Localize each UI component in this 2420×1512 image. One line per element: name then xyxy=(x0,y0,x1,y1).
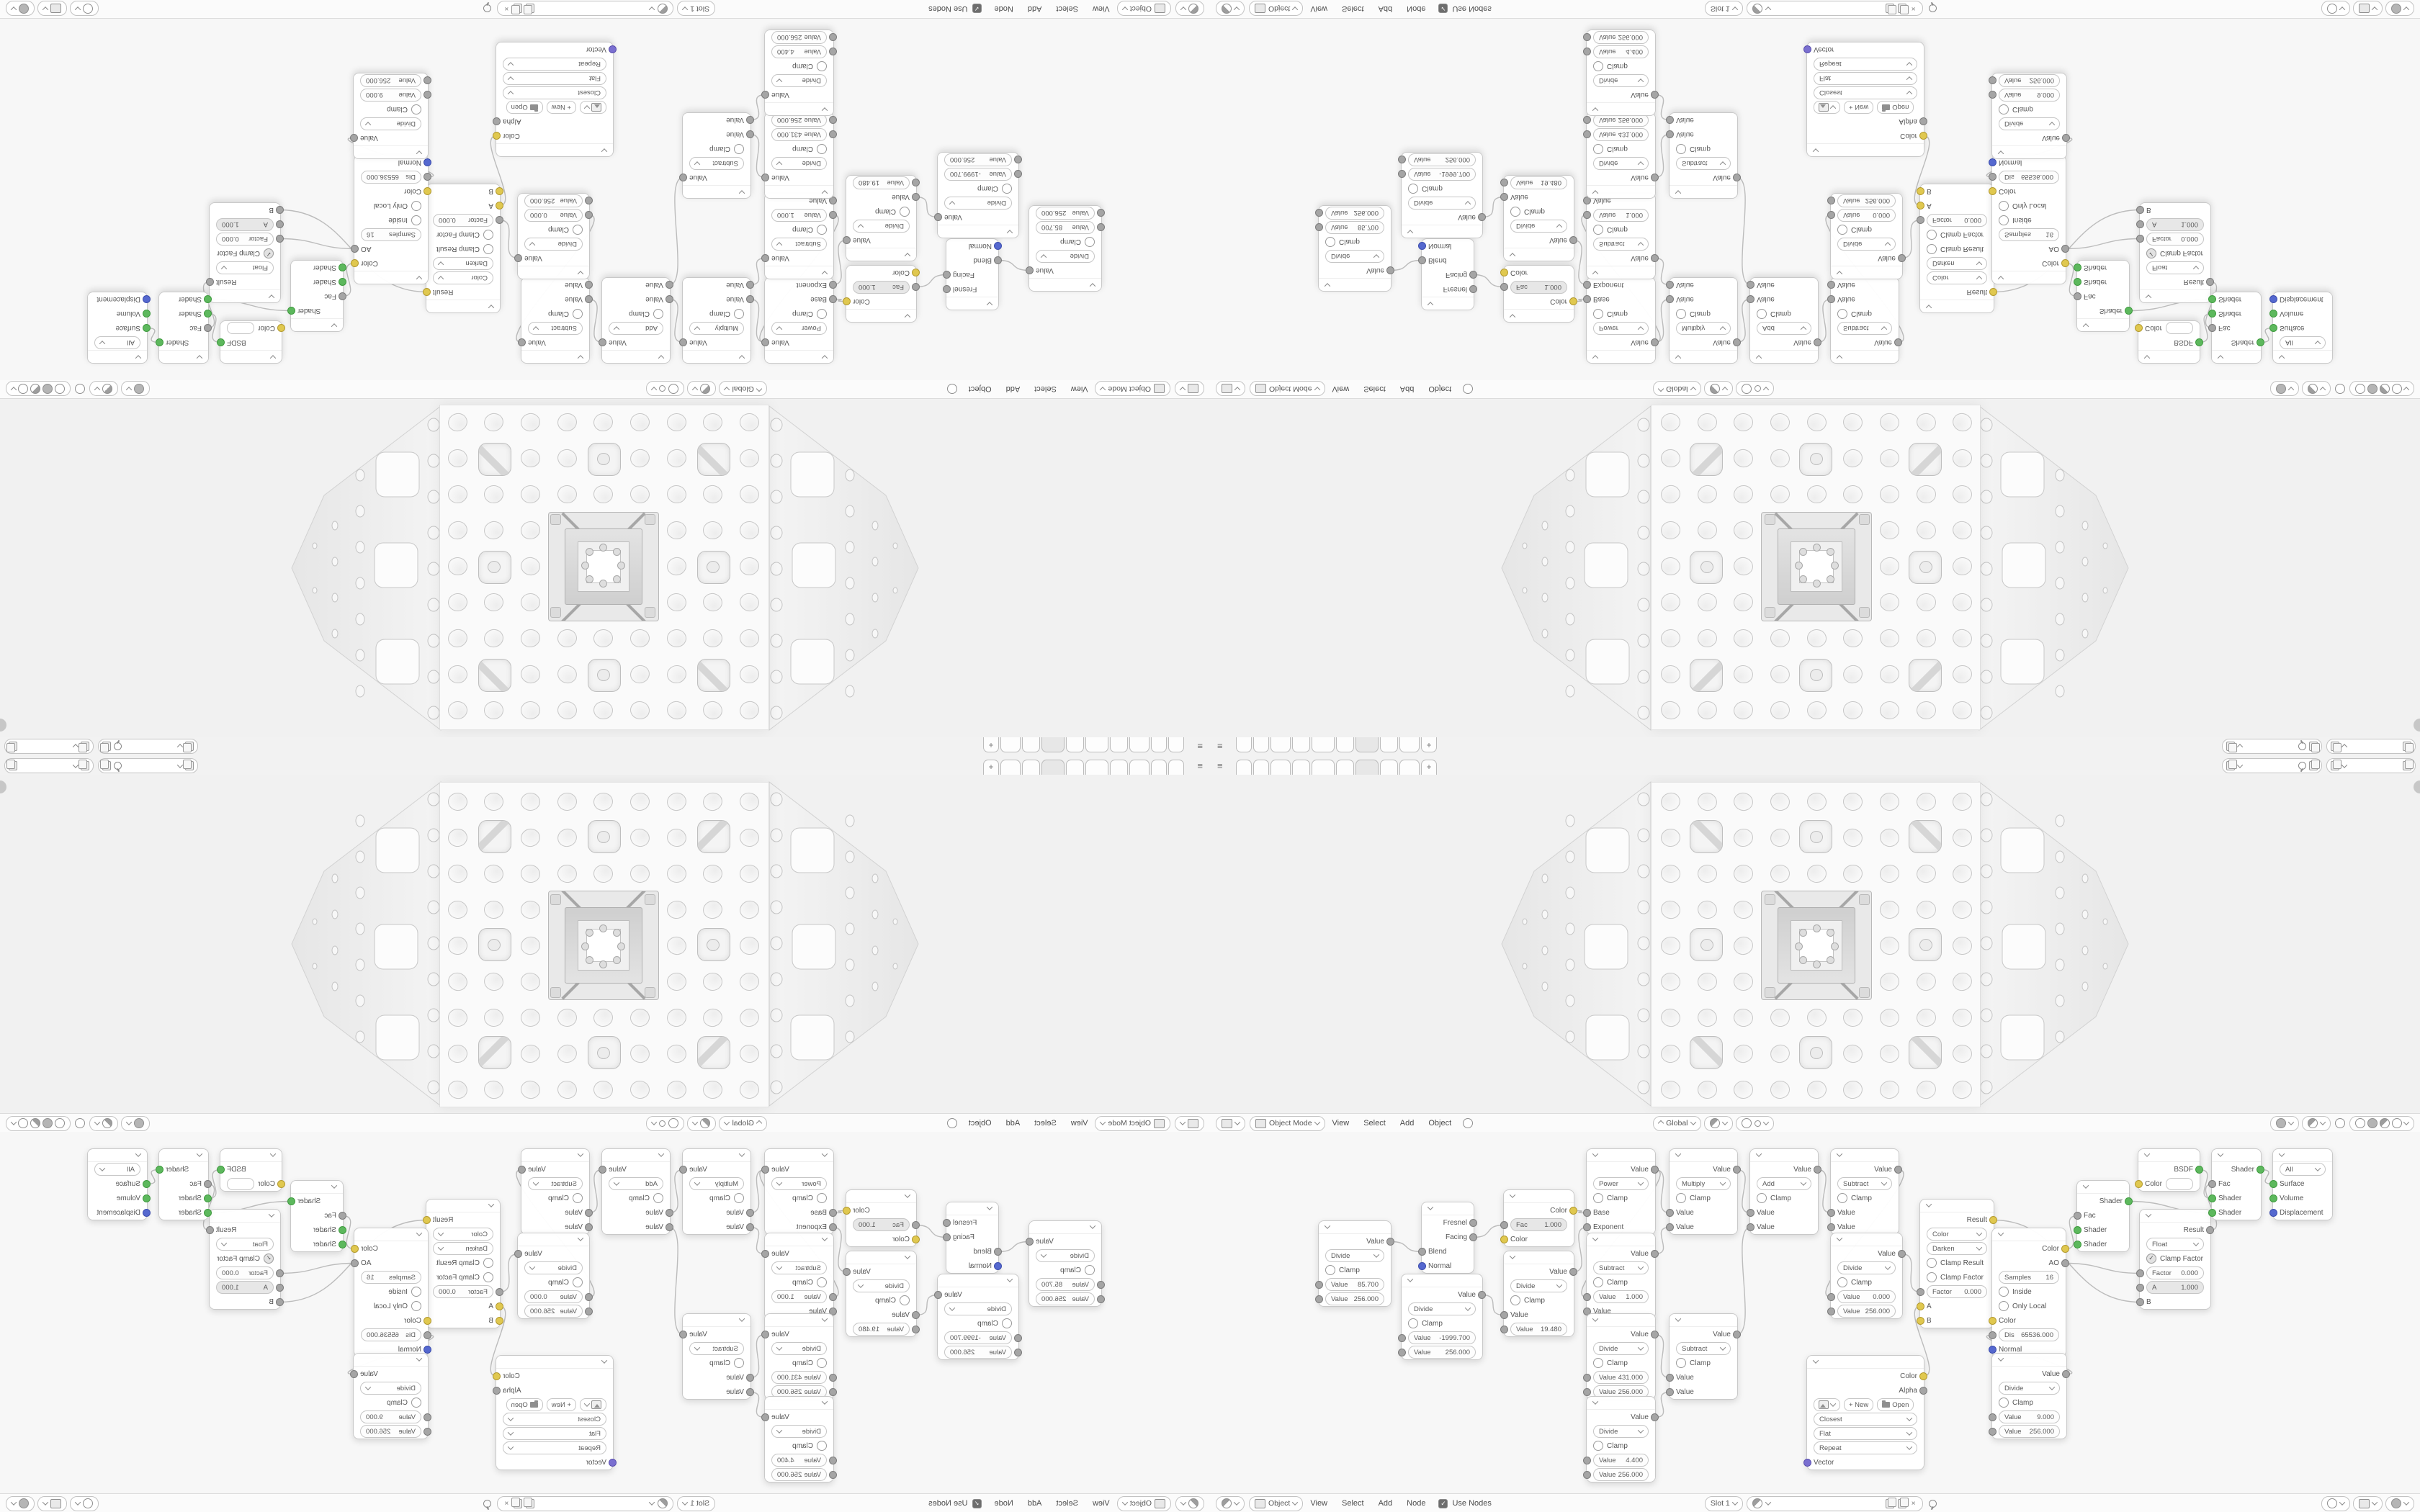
node-socket[interactable] xyxy=(1747,1223,1754,1231)
node-checkbox[interactable] xyxy=(483,1272,493,1282)
node-dropdown[interactable]: Divide xyxy=(1325,250,1384,263)
menu-node[interactable]: Node xyxy=(1399,1499,1433,1508)
node-socket[interactable] xyxy=(496,216,503,224)
node-socket[interactable] xyxy=(1583,1374,1591,1382)
node-checkbox[interactable] xyxy=(1927,244,1937,254)
node-checkbox[interactable] xyxy=(1927,1258,1937,1268)
node-value-field[interactable]: Value1.000 xyxy=(771,1290,827,1303)
node-checkbox[interactable]: ✓ xyxy=(2146,1254,2156,1264)
transform-pivot-icon[interactable] xyxy=(947,1118,957,1128)
node-collapse[interactable] xyxy=(1807,1356,1924,1369)
node-collapse[interactable] xyxy=(1670,1149,1737,1162)
shading-wireframe-icon[interactable] xyxy=(55,1118,65,1128)
shader-node-editor[interactable]: ValueDivideClampValue85.700Value256.000F… xyxy=(1210,19,2420,380)
shader-node-div857[interactable]: ValueDivideClampValue85.700Value256.000 xyxy=(1028,1220,1102,1307)
node-socket[interactable] xyxy=(2257,338,2264,346)
shader-node-div1999[interactable]: ValueDivideClampValue-1999.700Value256.0… xyxy=(1401,152,1483,238)
node-value-field[interactable]: A1.000 xyxy=(216,218,274,231)
node-value-field[interactable]: Value1.000 xyxy=(1593,1290,1649,1303)
node-socket[interactable] xyxy=(943,1219,951,1227)
node-checkbox[interactable] xyxy=(1085,237,1095,247)
node-value-field[interactable]: Value4.400 xyxy=(1593,45,1649,58)
node-dropdown[interactable]: Divide xyxy=(524,238,583,251)
node-socket[interactable] xyxy=(339,1226,346,1234)
shader-node-div431[interactable]: ValueDivideClampValue431.000Value256.000 xyxy=(1586,1313,1656,1400)
shader-node-div44[interactable]: ValueDivideClampValue4.400Value256.000 xyxy=(764,1396,834,1482)
node-collapse[interactable] xyxy=(291,1181,343,1194)
node-socket[interactable] xyxy=(276,1284,284,1292)
node-socket[interactable] xyxy=(2269,1209,2277,1217)
node-socket[interactable] xyxy=(1478,213,1486,221)
node-socket[interactable] xyxy=(2208,1194,2216,1202)
node-dropdown[interactable]: Flat xyxy=(1814,1427,1917,1440)
node-checkbox[interactable] xyxy=(1593,1193,1603,1203)
node-value-field[interactable]: Value431.000 xyxy=(1593,128,1649,141)
slot-dropdown[interactable]: Slot 1 xyxy=(1705,1496,1743,1511)
hamburger-menu-icon[interactable]: ≡ xyxy=(1190,761,1203,771)
node-socket[interactable] xyxy=(156,338,163,346)
node-socket[interactable] xyxy=(2269,1180,2277,1188)
use-nodes-checkbox[interactable]: ✓ xyxy=(1438,1499,1448,1508)
menu-select[interactable]: Select xyxy=(1027,1119,1064,1128)
open-image-button[interactable]: Open xyxy=(506,101,543,114)
node-socket[interactable] xyxy=(599,338,606,346)
shader-node-mix2[interactable]: ShaderFacShaderShader xyxy=(290,1180,344,1252)
node-socket[interactable] xyxy=(2257,1166,2264,1174)
menu-select[interactable]: Select xyxy=(1356,1119,1393,1128)
node-checkbox[interactable] xyxy=(1510,207,1520,217)
workspace-tab[interactable] xyxy=(1000,760,1021,775)
shader-node-mul[interactable]: ValueMultiplyClampValueValue xyxy=(682,277,751,364)
slot-dropdown[interactable]: Slot 1 xyxy=(1705,1,1743,17)
node-value-field[interactable]: Samples16 xyxy=(361,228,421,241)
node-value-field[interactable]: Factor0.000 xyxy=(2146,233,2204,246)
node-socket[interactable] xyxy=(1919,1372,1927,1380)
node-socket[interactable] xyxy=(423,91,431,99)
node-socket[interactable] xyxy=(2062,1370,2070,1378)
node-socket[interactable] xyxy=(1014,1334,1022,1342)
node-socket[interactable] xyxy=(1583,281,1591,289)
shading-rendered-icon[interactable] xyxy=(18,1118,28,1128)
node-socket[interactable] xyxy=(1583,48,1591,55)
node-socket[interactable] xyxy=(2195,1166,2203,1174)
shader-node-div1999[interactable]: ValueDivideClampValue-1999.700Value256.0… xyxy=(937,1274,1019,1360)
node-socket[interactable] xyxy=(1827,1308,1835,1315)
scene-name-field[interactable] xyxy=(2245,761,2295,770)
node-socket[interactable] xyxy=(2208,324,2216,332)
node-socket[interactable] xyxy=(1917,1302,1924,1310)
snap-magnet-icon[interactable] xyxy=(1704,1116,1733,1131)
node-dropdown[interactable]: Divide xyxy=(1593,1342,1649,1355)
node-socket[interactable] xyxy=(339,264,346,271)
node-collapse[interactable] xyxy=(521,350,589,363)
node-checkbox[interactable] xyxy=(1325,1265,1335,1275)
shader-node-invert[interactable]: ColorFac1.000Color xyxy=(846,265,917,323)
node-dropdown[interactable]: Subtract xyxy=(528,1177,583,1190)
node-collapse[interactable] xyxy=(765,1397,833,1410)
node-dropdown[interactable]: Divide xyxy=(771,157,827,170)
node-socket[interactable] xyxy=(1500,1236,1508,1243)
shader-node-div1948[interactable]: ValueDivideClampValueValue19.480 xyxy=(1503,1251,1574,1337)
node-socket[interactable] xyxy=(746,130,754,138)
node-dropdown[interactable]: Divide xyxy=(1036,1249,1095,1262)
gizmo-icon[interactable] xyxy=(2270,1116,2299,1131)
node-dropdown[interactable]: Power xyxy=(1593,1177,1649,1190)
node-checkbox[interactable] xyxy=(734,144,744,154)
node-collapse[interactable] xyxy=(220,1149,282,1162)
node-socket[interactable] xyxy=(2061,1259,2069,1267)
node-value-field[interactable]: Value9.000 xyxy=(1999,89,2060,102)
node-socket[interactable] xyxy=(585,1308,593,1315)
node-dropdown[interactable]: Multiply xyxy=(1676,1177,1731,1190)
node-socket[interactable] xyxy=(829,1457,837,1464)
shader-node-div857[interactable]: ValueDivideClampValue85.700Value256.000 xyxy=(1318,205,1391,292)
node-dropdown[interactable]: Subtract xyxy=(771,238,827,251)
node-checkbox[interactable]: ✓ xyxy=(264,1254,274,1264)
unlink-x-icon[interactable]: × xyxy=(1910,5,1917,13)
shader-node-layerweight[interactable]: FresnelFacingBlendNormal xyxy=(1421,1202,1474,1274)
shield-icon[interactable] xyxy=(1886,4,1894,14)
node-socket[interactable] xyxy=(1418,256,1426,264)
shader-node-div1948[interactable]: ValueDivideClampValueValue19.480 xyxy=(846,175,917,261)
node-collapse[interactable] xyxy=(1504,309,1574,322)
node-socket[interactable] xyxy=(829,1209,837,1217)
node-socket[interactable] xyxy=(1097,1281,1105,1289)
copy-icon[interactable] xyxy=(102,761,111,770)
menu-select[interactable]: Select xyxy=(1356,384,1393,393)
node-socket[interactable] xyxy=(1500,283,1508,291)
node-socket[interactable] xyxy=(746,281,754,289)
shading-material-icon[interactable] xyxy=(2380,1118,2390,1128)
node-value-field[interactable]: Value1.000 xyxy=(1593,209,1649,222)
node-socket[interactable] xyxy=(1747,281,1754,289)
node-checkbox[interactable] xyxy=(1593,1441,1603,1451)
node-checkbox[interactable] xyxy=(817,309,827,319)
shading-solid-icon[interactable] xyxy=(2367,384,2378,394)
scene-selector[interactable] xyxy=(98,758,198,773)
node-checkbox[interactable] xyxy=(1837,225,1847,235)
shader-node-div9[interactable]: ValueDivideClampValue9.000Value256.000 xyxy=(1991,73,2067,159)
node-socket[interactable] xyxy=(1014,156,1022,163)
node-value-field[interactable]: Value4.400 xyxy=(771,45,827,58)
viewport-3d[interactable] xyxy=(1210,399,2420,737)
node-value-field[interactable]: A1.000 xyxy=(2146,1281,2204,1294)
hamburger-menu-icon[interactable]: ≡ xyxy=(1217,761,1230,771)
shader-node-emission[interactable]: BSDFColor xyxy=(220,1148,282,1192)
node-collapse[interactable] xyxy=(1029,1221,1101,1234)
node-dropdown[interactable]: Closest xyxy=(1814,1413,1917,1426)
node-socket[interactable] xyxy=(518,338,526,346)
node-socket[interactable] xyxy=(1917,202,1924,210)
shader-node-div44[interactable]: ValueDivideClampValue4.400Value256.000 xyxy=(1586,1396,1656,1482)
node-socket[interactable] xyxy=(746,1209,754,1217)
viewport-3d[interactable] xyxy=(1210,775,2420,1113)
node-socket[interactable] xyxy=(1014,1349,1022,1356)
node-socket[interactable] xyxy=(1814,338,1821,346)
shader-node-sub2[interactable]: ValueSubtractClampValueValue xyxy=(1669,112,1738,199)
node-collapse[interactable] xyxy=(1587,1397,1655,1410)
node-dropdown[interactable]: Divide xyxy=(1036,250,1095,263)
image-browse-button[interactable] xyxy=(580,101,606,114)
node-dropdown[interactable]: Divide xyxy=(771,1425,827,1438)
shader-node-layerweight[interactable]: FresnelFacingBlendNormal xyxy=(946,1202,999,1274)
node-dropdown[interactable]: Divide xyxy=(1837,238,1896,251)
node-value-field[interactable]: Value256.000 xyxy=(1325,1292,1384,1305)
node-dropdown[interactable]: Subtract xyxy=(1837,322,1892,335)
node-value-field[interactable]: Fac1.000 xyxy=(853,1218,910,1231)
node-socket[interactable] xyxy=(204,295,212,303)
node-socket[interactable] xyxy=(2208,295,2216,303)
node-dropdown[interactable]: Repeat xyxy=(503,1441,606,1454)
node-dropdown[interactable]: Subtract xyxy=(689,1342,744,1355)
node-socket[interactable] xyxy=(351,1245,359,1253)
node-collapse[interactable] xyxy=(846,248,916,261)
node-value-field[interactable]: Value256.000 xyxy=(1837,194,1896,207)
node-socket[interactable] xyxy=(1583,1457,1591,1464)
editor-type-button[interactable] xyxy=(1216,382,1245,397)
shader-node-mul[interactable]: ValueMultiplyClampValueValue xyxy=(1669,277,1738,364)
node-socket[interactable] xyxy=(829,1374,837,1382)
node-value-field[interactable]: Value85.700 xyxy=(1036,221,1095,234)
node-socket[interactable] xyxy=(1651,1413,1659,1421)
node-value-field[interactable]: Value19.480 xyxy=(853,1323,910,1336)
node-socket[interactable] xyxy=(679,1166,687,1174)
workspace-tab[interactable] xyxy=(1236,737,1252,752)
node-collapse[interactable] xyxy=(683,1149,750,1162)
gizmo-icon[interactable] xyxy=(121,382,150,397)
node-socket[interactable] xyxy=(1500,179,1508,186)
node-socket[interactable] xyxy=(1315,223,1323,231)
node-socket[interactable] xyxy=(1469,1233,1477,1241)
shader-node-mixcolor[interactable]: ResultColorDarkenClamp ResultClamp Facto… xyxy=(1919,1199,1994,1328)
node-value-field[interactable]: Dis65536.000 xyxy=(1999,171,2059,184)
node-dropdown[interactable]: Divide xyxy=(1593,74,1649,87)
workspace-tab[interactable] xyxy=(1292,737,1310,752)
node-value-field[interactable]: Value256.000 xyxy=(1036,1292,1095,1305)
node-collapse[interactable] xyxy=(496,1356,613,1369)
shader-type-dropdown[interactable]: Object xyxy=(1117,1496,1171,1511)
node-socket[interactable] xyxy=(912,1326,920,1333)
node-socket[interactable] xyxy=(1919,1387,1927,1395)
node-dropdown[interactable]: Add xyxy=(1757,1177,1811,1190)
node-socket[interactable] xyxy=(943,285,951,293)
pin-icon[interactable] xyxy=(483,5,491,13)
node-socket[interactable] xyxy=(496,1317,503,1325)
node-socket[interactable] xyxy=(2269,310,2277,318)
node-value-field[interactable]: Value256.000 xyxy=(524,194,583,207)
shader-type-dropdown[interactable]: Object xyxy=(1117,1,1171,17)
node-checkbox[interactable] xyxy=(483,230,493,240)
node-socket[interactable] xyxy=(204,1209,212,1217)
node-socket[interactable] xyxy=(276,220,284,228)
node-collapse[interactable] xyxy=(1992,271,2066,284)
node-socket[interactable] xyxy=(1569,236,1577,244)
node-socket[interactable] xyxy=(1583,1388,1591,1396)
mode-dropdown[interactable]: Object Mode xyxy=(1250,382,1325,397)
shader-node-editor[interactable]: ValueDivideClampValue85.700Value256.000F… xyxy=(1210,1132,2420,1493)
node-value-field[interactable]: Value256.000 xyxy=(771,1468,827,1481)
pin-icon[interactable] xyxy=(2298,762,2306,770)
node-value-field[interactable]: Factor0.000 xyxy=(433,214,493,227)
node-collapse[interactable] xyxy=(946,297,998,310)
node-socket[interactable] xyxy=(761,1250,769,1258)
node-checkbox[interactable] xyxy=(1593,309,1603,319)
pin-icon[interactable] xyxy=(2298,742,2306,750)
workspace-tab[interactable] xyxy=(1270,737,1291,752)
workspace-tab[interactable] xyxy=(1336,760,1354,775)
node-socket[interactable] xyxy=(2074,278,2081,286)
shader-node-mix2[interactable]: ShaderFacShaderShader xyxy=(2076,1180,2130,1252)
node-socket[interactable] xyxy=(287,1197,295,1205)
shader-node-add[interactable]: ValueAddClampValueValue xyxy=(601,277,671,364)
node-checkbox[interactable] xyxy=(483,1258,493,1268)
menu-add[interactable]: Add xyxy=(999,1119,1028,1128)
shader-node-mixshader[interactable]: ShaderFacShaderShader xyxy=(2211,1148,2262,1220)
node-value-field[interactable]: Samples16 xyxy=(361,1271,421,1284)
node-socket[interactable] xyxy=(1917,187,1924,195)
node-dropdown[interactable]: Divide xyxy=(944,1302,1012,1315)
view-layer-selector[interactable] xyxy=(2326,739,2416,754)
node-socket[interactable] xyxy=(912,269,920,276)
shader-node-mixcolor[interactable]: ResultColorDarkenClamp ResultClamp Facto… xyxy=(1919,184,1994,313)
shader-node-mixfloat[interactable]: ResultFloat✓Clamp FactorFactor0.000A1.00… xyxy=(209,1209,281,1310)
color-swatch[interactable] xyxy=(2166,323,2193,335)
workspace-tab[interactable] xyxy=(1292,760,1310,775)
shader-node-div431[interactable]: ValueDivideClampValue431.000Value256.000 xyxy=(764,1313,834,1400)
node-socket[interactable] xyxy=(1500,1326,1508,1333)
add-workspace-button[interactable]: + xyxy=(983,760,999,775)
menu-view[interactable]: View xyxy=(1064,384,1095,393)
new-image-button[interactable]: + New xyxy=(1844,101,1873,114)
shader-node-div1999[interactable]: ValueDivideClampValue-1999.700Value256.0… xyxy=(937,152,1019,238)
node-collapse[interactable] xyxy=(1587,350,1655,363)
shader-type-dropdown[interactable]: Object xyxy=(1249,1496,1303,1511)
node-socket[interactable] xyxy=(1814,1166,1821,1174)
workspace-tab[interactable] xyxy=(1355,760,1379,775)
node-socket[interactable] xyxy=(2208,1180,2216,1188)
node-checkbox[interactable] xyxy=(573,225,583,235)
shader-node-layerweight[interactable]: FresnelFacingBlendNormal xyxy=(946,238,999,310)
node-collapse[interactable] xyxy=(1422,297,1474,310)
node-socket[interactable] xyxy=(609,1459,617,1467)
node-checkbox[interactable] xyxy=(411,215,421,225)
node-socket[interactable] xyxy=(276,235,284,243)
node-socket[interactable] xyxy=(1989,288,1997,296)
node-socket[interactable] xyxy=(1917,1288,1924,1296)
shading-mode-cluster[interactable] xyxy=(2349,1116,2414,1131)
shader-node-sub3[interactable]: ValueSubtractClampValueValue xyxy=(521,277,590,364)
node-dropdown[interactable]: Divide xyxy=(1408,1302,1476,1315)
node-socket[interactable] xyxy=(2061,259,2069,267)
shading-mode-cluster[interactable] xyxy=(2349,382,2414,397)
new-image-button[interactable]: + New xyxy=(547,101,576,114)
node-checkbox[interactable] xyxy=(817,1277,827,1287)
shading-solid-icon[interactable] xyxy=(42,1118,53,1128)
node-dropdown[interactable]: Flat xyxy=(503,72,606,85)
node-value-field[interactable]: Dis65536.000 xyxy=(361,1328,421,1341)
node-value-field[interactable]: Value431.000 xyxy=(771,1371,827,1384)
node-socket[interactable] xyxy=(746,1374,754,1382)
node-socket[interactable] xyxy=(350,134,358,142)
node-value-field[interactable]: Samples16 xyxy=(1999,228,2059,241)
node-socket[interactable] xyxy=(1733,1166,1741,1174)
copy-icon[interactable] xyxy=(2403,742,2411,751)
node-checkbox[interactable] xyxy=(411,104,421,114)
add-workspace-button[interactable]: + xyxy=(983,737,999,752)
node-value-field[interactable]: Value256.000 xyxy=(1325,207,1384,220)
pin-icon[interactable] xyxy=(1929,5,1937,13)
node-socket[interactable] xyxy=(1583,1293,1591,1301)
view-layer-name-field[interactable] xyxy=(2349,742,2400,751)
node-value-field[interactable]: Factor0.000 xyxy=(216,233,274,246)
node-collapse[interactable] xyxy=(1029,278,1101,291)
node-dropdown[interactable]: Divide xyxy=(771,1342,827,1355)
copy-icon[interactable] xyxy=(1898,4,1906,14)
node-socket[interactable] xyxy=(843,1268,851,1276)
node-dropdown[interactable]: Repeat xyxy=(503,58,606,71)
node-socket[interactable] xyxy=(1827,1209,1835,1217)
workspace-tab[interactable] xyxy=(1022,760,1040,775)
node-checkbox[interactable] xyxy=(1999,1301,2009,1311)
node-value-field[interactable]: Value85.700 xyxy=(1325,221,1384,234)
node-checkbox[interactable] xyxy=(900,1295,910,1305)
node-value-field[interactable]: Value85.700 xyxy=(1325,1278,1384,1291)
node-socket[interactable] xyxy=(277,1180,285,1188)
node-collapse[interactable] xyxy=(1992,1354,2066,1367)
node-socket[interactable] xyxy=(143,310,151,318)
node-socket[interactable] xyxy=(1898,1250,1906,1258)
editor-type-button[interactable] xyxy=(1175,1116,1204,1131)
shader-node-mixcolor[interactable]: ResultColorDarkenClamp ResultClamp Facto… xyxy=(426,1199,501,1328)
node-socket[interactable] xyxy=(2269,1194,2277,1202)
menu-view[interactable]: View xyxy=(1303,1499,1335,1508)
node-value-field[interactable]: Value19.480 xyxy=(853,176,910,189)
shader-node-editor[interactable]: ValueDivideClampValue85.700Value256.000F… xyxy=(0,1132,1210,1493)
node-socket[interactable] xyxy=(2269,324,2277,332)
shader-node-ao[interactable]: ColorAOSamples16InsideOnly LocalColorDis… xyxy=(354,1228,429,1357)
editor-type-button[interactable] xyxy=(1175,1496,1204,1511)
shader-node-sub1[interactable]: ValueSubtractClampValue1.000Value xyxy=(764,1233,834,1319)
xray-icon[interactable] xyxy=(75,384,85,394)
node-dropdown[interactable]: Subtract xyxy=(528,322,583,335)
menu-select[interactable]: Select xyxy=(1049,1499,1085,1508)
node-dropdown[interactable]: Color xyxy=(1927,271,1987,284)
shader-node-invert[interactable]: ColorFac1.000Color xyxy=(1503,1189,1574,1247)
node-collapse[interactable] xyxy=(210,289,280,302)
node-socket[interactable] xyxy=(277,324,285,332)
node-collapse[interactable] xyxy=(683,185,750,198)
node-socket[interactable] xyxy=(1418,1248,1426,1256)
node-collapse[interactable] xyxy=(1750,350,1818,363)
shader-node-output[interactable]: AllSurfaceVolumeDisplacement xyxy=(87,1148,148,1220)
node-socket[interactable] xyxy=(2206,278,2214,286)
shader-node-div44[interactable]: ValueDivideClampValue4.400Value256.000 xyxy=(1586,30,1656,116)
workspace-tab[interactable] xyxy=(1129,737,1149,752)
node-collapse[interactable] xyxy=(1319,1221,1391,1234)
snapping-icon[interactable] xyxy=(2321,1,2350,17)
node-socket[interactable] xyxy=(829,1293,837,1301)
shader-node-mul[interactable]: ValueMultiplyClampValueValue xyxy=(1669,1148,1738,1235)
node-socket[interactable] xyxy=(1418,1262,1426,1270)
open-image-button[interactable]: Open xyxy=(1877,1398,1914,1411)
node-value-field[interactable]: Value-1999.700 xyxy=(1408,168,1476,181)
snapping-icon[interactable] xyxy=(2321,1496,2350,1511)
menu-select[interactable]: Select xyxy=(1027,384,1064,393)
node-socket[interactable] xyxy=(665,281,673,289)
node-socket[interactable] xyxy=(746,116,754,124)
shading-material-icon[interactable] xyxy=(30,384,40,394)
node-value-field[interactable]: Fac1.000 xyxy=(1510,1218,1567,1231)
